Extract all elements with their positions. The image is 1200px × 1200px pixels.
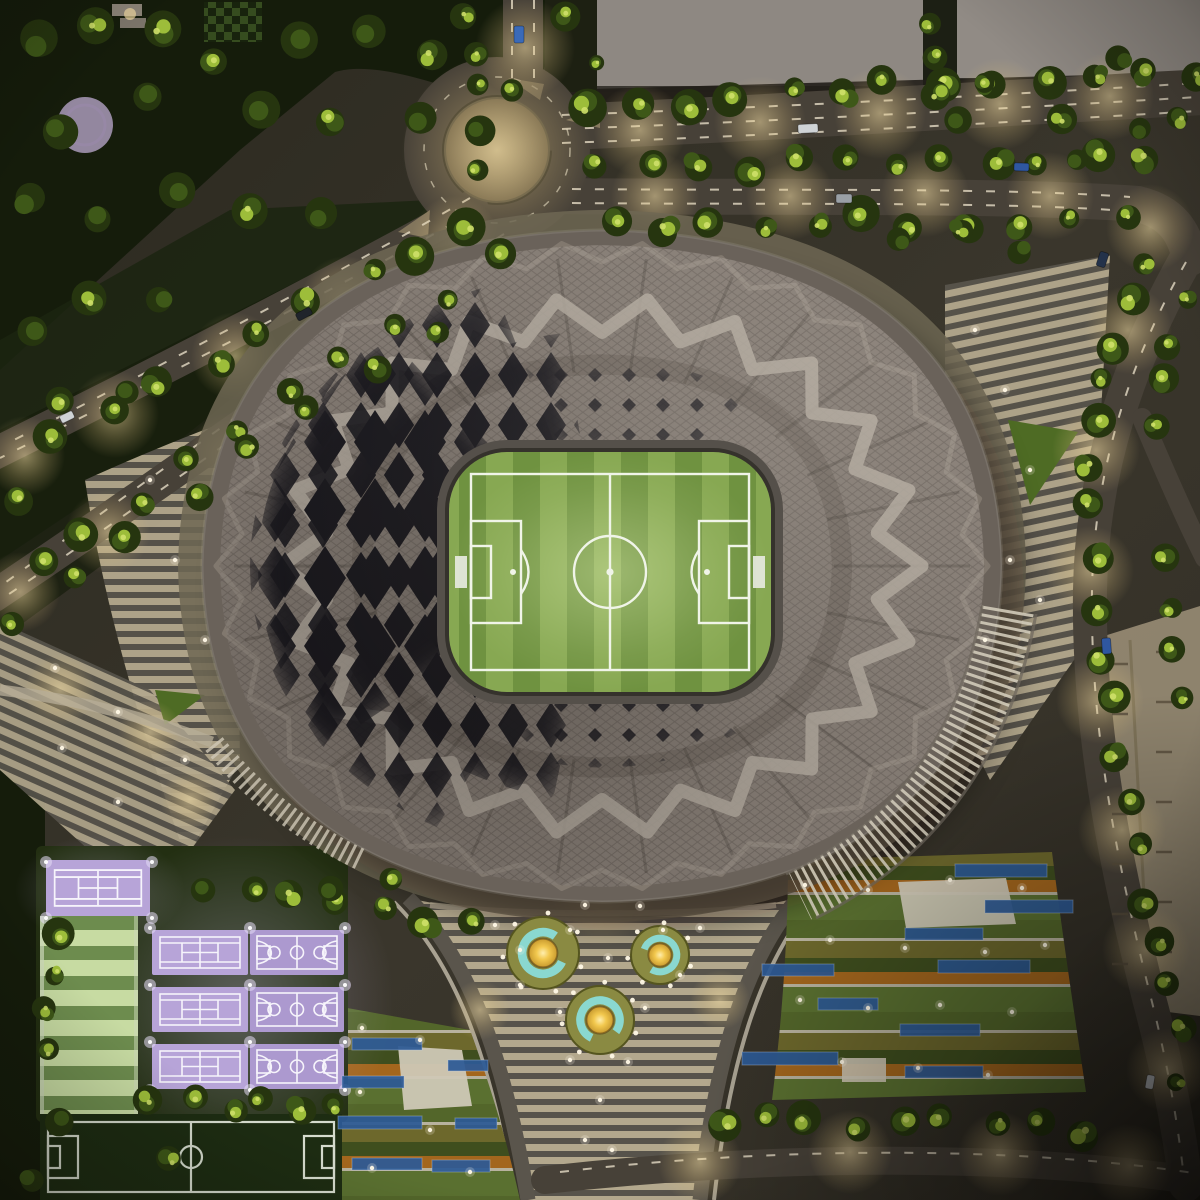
aerial-photo-stadium-model (0, 0, 1200, 1200)
scene-canvas (0, 0, 1200, 1200)
